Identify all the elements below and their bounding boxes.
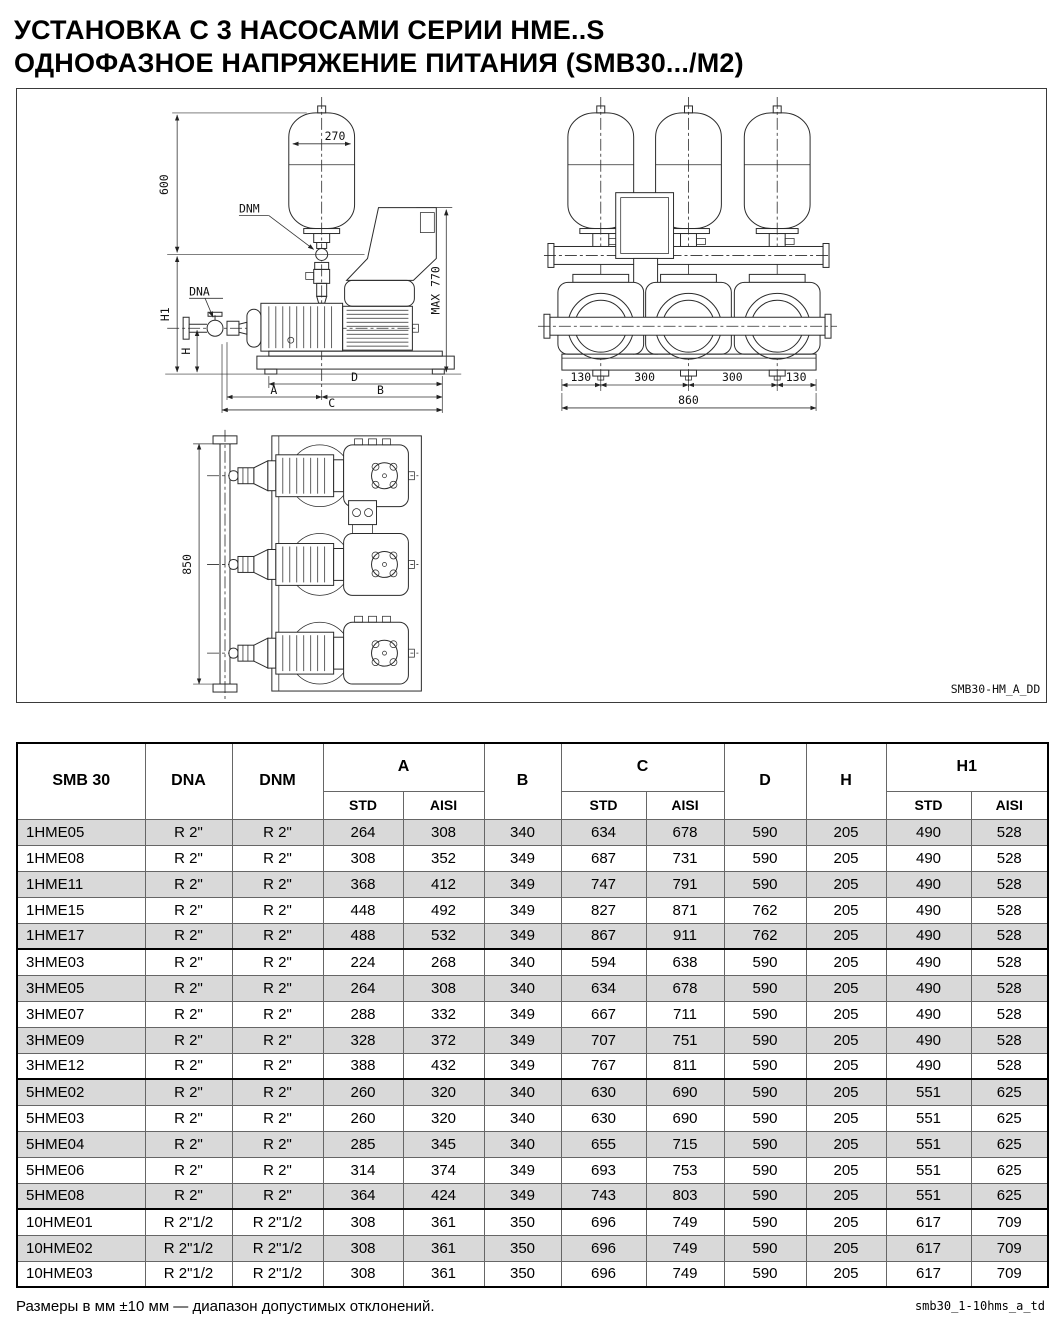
header-h1: H1	[886, 743, 1048, 791]
cell-h1_aisi: 625	[971, 1105, 1048, 1131]
cell-d: 590	[724, 949, 806, 975]
cell-c_std: 655	[561, 1131, 646, 1157]
cell-h: 205	[806, 1209, 886, 1235]
cell-dna: R 2"	[145, 871, 232, 897]
cell-dna: R 2"1/2	[145, 1235, 232, 1261]
cell-h1_aisi: 528	[971, 897, 1048, 923]
cell-d: 590	[724, 975, 806, 1001]
table-row: 5HME03R 2"R 2"26032034063069059020555162…	[17, 1105, 1048, 1131]
cell-h1_std: 490	[886, 897, 971, 923]
cell-h1_aisi: 528	[971, 871, 1048, 897]
cell-model: 3HME09	[17, 1027, 145, 1053]
cell-a_aisi: 268	[403, 949, 484, 975]
cell-c_aisi: 749	[646, 1261, 724, 1287]
cell-h1_std: 617	[886, 1261, 971, 1287]
cell-h1_std: 490	[886, 923, 971, 949]
cell-b: 350	[484, 1261, 561, 1287]
cell-c_std: 707	[561, 1027, 646, 1053]
cell-a_std: 308	[323, 1235, 403, 1261]
dim-label-h1: H1	[158, 307, 172, 321]
cell-c_std: 747	[561, 871, 646, 897]
table-row: 1HME15R 2"R 2"44849234982787176220549052…	[17, 897, 1048, 923]
cell-c_std: 630	[561, 1105, 646, 1131]
cell-dnm: R 2"	[232, 923, 323, 949]
dim-label-max770: MAX 770	[428, 266, 442, 314]
cell-a_aisi: 345	[403, 1131, 484, 1157]
cell-c_std: 696	[561, 1235, 646, 1261]
cell-a_aisi: 361	[403, 1235, 484, 1261]
cell-c_std: 743	[561, 1183, 646, 1209]
dim-label-130-left: 130	[570, 370, 591, 384]
table-row: 1HME08R 2"R 2"30835234968773159020549052…	[17, 845, 1048, 871]
cell-h1_aisi: 528	[971, 975, 1048, 1001]
cell-h: 205	[806, 923, 886, 949]
cell-c_aisi: 731	[646, 845, 724, 871]
cell-model: 10HME03	[17, 1261, 145, 1287]
cell-h1_std: 551	[886, 1131, 971, 1157]
dim-label-d: D	[351, 370, 358, 384]
header-model: SMB 30	[17, 743, 145, 819]
cell-h: 205	[806, 1001, 886, 1027]
page-title-line1: УСТАНОВКА С 3 НАСОСАМИ СЕРИИ HME..S	[14, 14, 744, 47]
cell-h1_aisi: 528	[971, 1001, 1048, 1027]
cell-c_std: 634	[561, 975, 646, 1001]
dim-label-c: C	[328, 396, 335, 410]
cell-h1_std: 490	[886, 975, 971, 1001]
cell-model: 10HME02	[17, 1235, 145, 1261]
cell-a_std: 368	[323, 871, 403, 897]
cell-h1_std: 551	[886, 1183, 971, 1209]
cell-h1_aisi: 528	[971, 923, 1048, 949]
cell-h1_aisi: 625	[971, 1079, 1048, 1105]
cell-h1_aisi: 528	[971, 1027, 1048, 1053]
cell-a_aisi: 308	[403, 819, 484, 845]
cell-dnm: R 2"1/2	[232, 1235, 323, 1261]
cell-a_aisi: 361	[403, 1261, 484, 1287]
cell-h1_std: 617	[886, 1235, 971, 1261]
cell-h: 205	[806, 1105, 886, 1131]
dim-label-300-right: 300	[722, 370, 743, 384]
cell-d: 590	[724, 1209, 806, 1235]
cell-c_std: 687	[561, 845, 646, 871]
page-title-line2: ОДНОФАЗНОЕ НАПРЯЖЕНИЕ ПИТАНИЯ (SMB30.../…	[14, 47, 744, 80]
cell-d: 590	[724, 1157, 806, 1183]
cell-h1_std: 490	[886, 1053, 971, 1079]
cell-h1_std: 551	[886, 1105, 971, 1131]
cell-c_std: 827	[561, 897, 646, 923]
cell-model: 3HME05	[17, 975, 145, 1001]
cell-d: 590	[724, 1001, 806, 1027]
header-dna: DNA	[145, 743, 232, 819]
cell-dnm: R 2"	[232, 1027, 323, 1053]
table-row: 3HME12R 2"R 2"38843234976781159020549052…	[17, 1053, 1048, 1079]
cell-model: 3HME07	[17, 1001, 145, 1027]
cell-d: 590	[724, 1079, 806, 1105]
cell-h: 205	[806, 819, 886, 845]
cell-c_aisi: 791	[646, 871, 724, 897]
cell-dnm: R 2"	[232, 1001, 323, 1027]
cell-d: 590	[724, 845, 806, 871]
cell-model: 1HME11	[17, 871, 145, 897]
cell-dnm: R 2"	[232, 1131, 323, 1157]
cell-model: 10HME01	[17, 1209, 145, 1235]
cell-a_aisi: 424	[403, 1183, 484, 1209]
cell-c_aisi: 678	[646, 819, 724, 845]
dim-label-a: A	[270, 383, 277, 397]
cell-d: 762	[724, 897, 806, 923]
cell-dnm: R 2"	[232, 949, 323, 975]
table-row: 5HME04R 2"R 2"28534534065571559020555162…	[17, 1131, 1048, 1157]
cell-h: 205	[806, 871, 886, 897]
cell-b: 340	[484, 975, 561, 1001]
cell-c_aisi: 803	[646, 1183, 724, 1209]
cell-a_std: 264	[323, 819, 403, 845]
cell-dnm: R 2"	[232, 1183, 323, 1209]
cell-d: 590	[724, 819, 806, 845]
header-d: D	[724, 743, 806, 819]
cell-dna: R 2"	[145, 1183, 232, 1209]
dim-label-h: H	[179, 348, 193, 355]
cell-h1_aisi: 709	[971, 1235, 1048, 1261]
cell-a_std: 488	[323, 923, 403, 949]
table-row: 3HME05R 2"R 2"26430834063467859020549052…	[17, 975, 1048, 1001]
cell-a_aisi: 308	[403, 975, 484, 1001]
table-row: 1HME17R 2"R 2"48853234986791176220549052…	[17, 923, 1048, 949]
drawing-code: SMB30-HM_A_DD	[951, 682, 1041, 696]
cell-h1_std: 490	[886, 1027, 971, 1053]
cell-model: 3HME03	[17, 949, 145, 975]
header-c: C	[561, 743, 724, 791]
cell-a_aisi: 352	[403, 845, 484, 871]
cell-a_aisi: 361	[403, 1209, 484, 1235]
side-view-drawing: 270 600 H1 H MAX 770 DNM DNA D A B C	[157, 97, 461, 413]
cell-b: 340	[484, 1131, 561, 1157]
cell-c_std: 696	[561, 1209, 646, 1235]
cell-dnm: R 2"	[232, 1079, 323, 1105]
cell-c_aisi: 911	[646, 923, 724, 949]
cell-dna: R 2"	[145, 1001, 232, 1027]
cell-a_std: 308	[323, 1261, 403, 1287]
cell-c_std: 630	[561, 1079, 646, 1105]
cell-c_std: 696	[561, 1261, 646, 1287]
cell-h: 205	[806, 1079, 886, 1105]
cell-a_aisi: 412	[403, 871, 484, 897]
cell-a_std: 260	[323, 1079, 403, 1105]
subheader-c-std: STD	[561, 791, 646, 819]
cell-dna: R 2"	[145, 1105, 232, 1131]
cell-b: 350	[484, 1209, 561, 1235]
dim-label-600: 600	[157, 174, 171, 195]
cell-a_aisi: 320	[403, 1079, 484, 1105]
cell-dna: R 2"	[145, 1131, 232, 1157]
cell-d: 762	[724, 923, 806, 949]
table-row: 10HME03R 2"1/2R 2"1/23083613506967495902…	[17, 1261, 1048, 1287]
cell-c_std: 693	[561, 1157, 646, 1183]
cell-a_std: 260	[323, 1105, 403, 1131]
cell-model: 5HME04	[17, 1131, 145, 1157]
cell-dna: R 2"	[145, 1157, 232, 1183]
cell-a_std: 288	[323, 1001, 403, 1027]
cell-a_aisi: 432	[403, 1053, 484, 1079]
cell-b: 340	[484, 1105, 561, 1131]
cell-h1_std: 490	[886, 845, 971, 871]
cell-a_aisi: 320	[403, 1105, 484, 1131]
cell-d: 590	[724, 1053, 806, 1079]
cell-c_std: 594	[561, 949, 646, 975]
cell-h1_std: 551	[886, 1157, 971, 1183]
cell-b: 349	[484, 1053, 561, 1079]
cell-d: 590	[724, 1027, 806, 1053]
subheader-c-aisi: AISI	[646, 791, 724, 819]
cell-c_aisi: 678	[646, 975, 724, 1001]
cell-dnm: R 2"	[232, 845, 323, 871]
cell-a_std: 448	[323, 897, 403, 923]
cell-b: 349	[484, 871, 561, 897]
dimensions-table: SMB 30 DNA DNM A B C D H H1 STD AISI STD…	[16, 742, 1049, 1288]
front-view-drawing: 130 300 300 130 860	[538, 97, 837, 411]
cell-h1_aisi: 528	[971, 949, 1048, 975]
cell-a_aisi: 492	[403, 897, 484, 923]
table-row: 10HME02R 2"1/2R 2"1/23083613506967495902…	[17, 1235, 1048, 1261]
cell-model: 5HME02	[17, 1079, 145, 1105]
cell-a_aisi: 532	[403, 923, 484, 949]
cell-d: 590	[724, 1131, 806, 1157]
cell-c_aisi: 749	[646, 1235, 724, 1261]
cell-dnm: R 2"	[232, 897, 323, 923]
cell-dna: R 2"	[145, 1079, 232, 1105]
cell-c_std: 867	[561, 923, 646, 949]
cell-a_aisi: 374	[403, 1157, 484, 1183]
cell-b: 349	[484, 1001, 561, 1027]
cell-a_std: 308	[323, 845, 403, 871]
dim-label-300-left: 300	[634, 370, 655, 384]
cell-a_std: 224	[323, 949, 403, 975]
cell-b: 349	[484, 897, 561, 923]
cell-dnm: R 2"	[232, 1105, 323, 1131]
cell-dna: R 2"	[145, 819, 232, 845]
cell-h: 205	[806, 949, 886, 975]
cell-h1_std: 490	[886, 871, 971, 897]
cell-model: 3HME12	[17, 1053, 145, 1079]
cell-a_aisi: 332	[403, 1001, 484, 1027]
cell-h1_aisi: 709	[971, 1261, 1048, 1287]
cell-dna: R 2"	[145, 975, 232, 1001]
header-dnm: DNM	[232, 743, 323, 819]
cell-h1_aisi: 625	[971, 1131, 1048, 1157]
cell-d: 590	[724, 871, 806, 897]
cell-c_std: 767	[561, 1053, 646, 1079]
header-b: B	[484, 743, 561, 819]
cell-model: 5HME03	[17, 1105, 145, 1131]
dim-label-dnm: DNM	[239, 202, 260, 216]
cell-c_aisi: 715	[646, 1131, 724, 1157]
cell-c_aisi: 690	[646, 1079, 724, 1105]
cell-c_aisi: 690	[646, 1105, 724, 1131]
cell-model: 1HME17	[17, 923, 145, 949]
cell-dna: R 2"	[145, 1053, 232, 1079]
cell-d: 590	[724, 1261, 806, 1287]
table-row: 3HME03R 2"R 2"22426834059463859020549052…	[17, 949, 1048, 975]
cell-c_aisi: 638	[646, 949, 724, 975]
cell-c_aisi: 871	[646, 897, 724, 923]
cell-b: 340	[484, 1079, 561, 1105]
table-row: 3HME09R 2"R 2"32837234970775159020549052…	[17, 1027, 1048, 1053]
cell-a_aisi: 372	[403, 1027, 484, 1053]
cell-h1_std: 551	[886, 1079, 971, 1105]
cell-dna: R 2"	[145, 1027, 232, 1053]
dim-label-130-right: 130	[786, 370, 807, 384]
cell-b: 340	[484, 819, 561, 845]
cell-a_std: 364	[323, 1183, 403, 1209]
cell-h: 205	[806, 1157, 886, 1183]
cell-b: 349	[484, 845, 561, 871]
cell-b: 350	[484, 1235, 561, 1261]
cell-dna: R 2"1/2	[145, 1261, 232, 1287]
technical-drawing-panel: 270 600 H1 H MAX 770 DNM DNA D A B C	[16, 88, 1047, 703]
dim-label-tank-dia: 270	[325, 129, 346, 143]
cell-c_aisi: 749	[646, 1209, 724, 1235]
cell-d: 590	[724, 1183, 806, 1209]
top-view-drawing: 850	[180, 430, 421, 699]
cell-dnm: R 2"1/2	[232, 1261, 323, 1287]
cell-c_aisi: 753	[646, 1157, 724, 1183]
cell-dna: R 2"	[145, 923, 232, 949]
cell-d: 590	[724, 1105, 806, 1131]
cell-h1_aisi: 625	[971, 1157, 1048, 1183]
cell-dnm: R 2"	[232, 1157, 323, 1183]
table-row: 1HME11R 2"R 2"36841234974779159020549052…	[17, 871, 1048, 897]
cell-h1_aisi: 528	[971, 819, 1048, 845]
cell-h1_aisi: 709	[971, 1209, 1048, 1235]
table-row: 5HME02R 2"R 2"26032034063069059020555162…	[17, 1079, 1048, 1105]
cell-b: 349	[484, 1157, 561, 1183]
cell-dnm: R 2"1/2	[232, 1209, 323, 1235]
cell-dnm: R 2"	[232, 1053, 323, 1079]
cell-model: 1HME15	[17, 897, 145, 923]
header-a: A	[323, 743, 484, 791]
cell-b: 349	[484, 1183, 561, 1209]
cell-h1_aisi: 528	[971, 845, 1048, 871]
subheader-a-std: STD	[323, 791, 403, 819]
cell-c_std: 667	[561, 1001, 646, 1027]
cell-b: 349	[484, 1027, 561, 1053]
dim-label-850: 850	[180, 554, 194, 575]
cell-a_std: 328	[323, 1027, 403, 1053]
cell-d: 590	[724, 1235, 806, 1261]
cell-b: 340	[484, 949, 561, 975]
cell-model: 5HME08	[17, 1183, 145, 1209]
cell-h: 205	[806, 1053, 886, 1079]
table-row: 5HME06R 2"R 2"31437434969375359020555162…	[17, 1157, 1048, 1183]
dim-label-860: 860	[678, 393, 699, 407]
cell-a_std: 388	[323, 1053, 403, 1079]
cell-dna: R 2"	[145, 845, 232, 871]
cell-h1_std: 490	[886, 949, 971, 975]
cell-model: 5HME06	[17, 1157, 145, 1183]
cell-model: 1HME08	[17, 845, 145, 871]
table-row: 3HME07R 2"R 2"28833234966771159020549052…	[17, 1001, 1048, 1027]
cell-h1_aisi: 625	[971, 1183, 1048, 1209]
table-row: 10HME01R 2"1/2R 2"1/23083613506967495902…	[17, 1209, 1048, 1235]
cell-a_std: 285	[323, 1131, 403, 1157]
cell-h1_aisi: 528	[971, 1053, 1048, 1079]
cell-h: 205	[806, 975, 886, 1001]
cell-a_std: 308	[323, 1209, 403, 1235]
table-body: 1HME05R 2"R 2"26430834063467859020549052…	[17, 819, 1048, 1287]
cell-c_aisi: 711	[646, 1001, 724, 1027]
cell-h: 205	[806, 1235, 886, 1261]
cell-a_std: 314	[323, 1157, 403, 1183]
footer-note: Размеры в мм ±10 мм — диапазон допустимы…	[16, 1298, 435, 1315]
cell-h1_std: 490	[886, 1001, 971, 1027]
cell-h: 205	[806, 1131, 886, 1157]
cell-a_std: 264	[323, 975, 403, 1001]
cell-dnm: R 2"	[232, 871, 323, 897]
cell-h1_std: 490	[886, 819, 971, 845]
cell-c_aisi: 811	[646, 1053, 724, 1079]
cell-model: 1HME05	[17, 819, 145, 845]
cell-dnm: R 2"	[232, 975, 323, 1001]
page-title: УСТАНОВКА С 3 НАСОСАМИ СЕРИИ HME..S ОДНО…	[14, 14, 744, 80]
cell-h1_std: 617	[886, 1209, 971, 1235]
dim-label-b: B	[377, 383, 384, 397]
subheader-a-aisi: AISI	[403, 791, 484, 819]
cell-c_std: 634	[561, 819, 646, 845]
cell-dna: R 2"	[145, 897, 232, 923]
cell-b: 349	[484, 923, 561, 949]
footer-doc-code: smb30_1-10hms_a_td	[915, 1299, 1045, 1313]
cell-h: 205	[806, 845, 886, 871]
cell-h: 205	[806, 897, 886, 923]
cell-h: 205	[806, 1027, 886, 1053]
cell-c_aisi: 751	[646, 1027, 724, 1053]
cell-h: 205	[806, 1183, 886, 1209]
cell-dna: R 2"	[145, 949, 232, 975]
cell-dnm: R 2"	[232, 819, 323, 845]
table-row: 1HME05R 2"R 2"26430834063467859020549052…	[17, 819, 1048, 845]
subheader-h1-aisi: AISI	[971, 791, 1048, 819]
table-row: 5HME08R 2"R 2"36442434974380359020555162…	[17, 1183, 1048, 1209]
cell-dna: R 2"1/2	[145, 1209, 232, 1235]
subheader-h1-std: STD	[886, 791, 971, 819]
dim-label-dna: DNA	[189, 284, 210, 298]
cell-h: 205	[806, 1261, 886, 1287]
header-h: H	[806, 743, 886, 819]
